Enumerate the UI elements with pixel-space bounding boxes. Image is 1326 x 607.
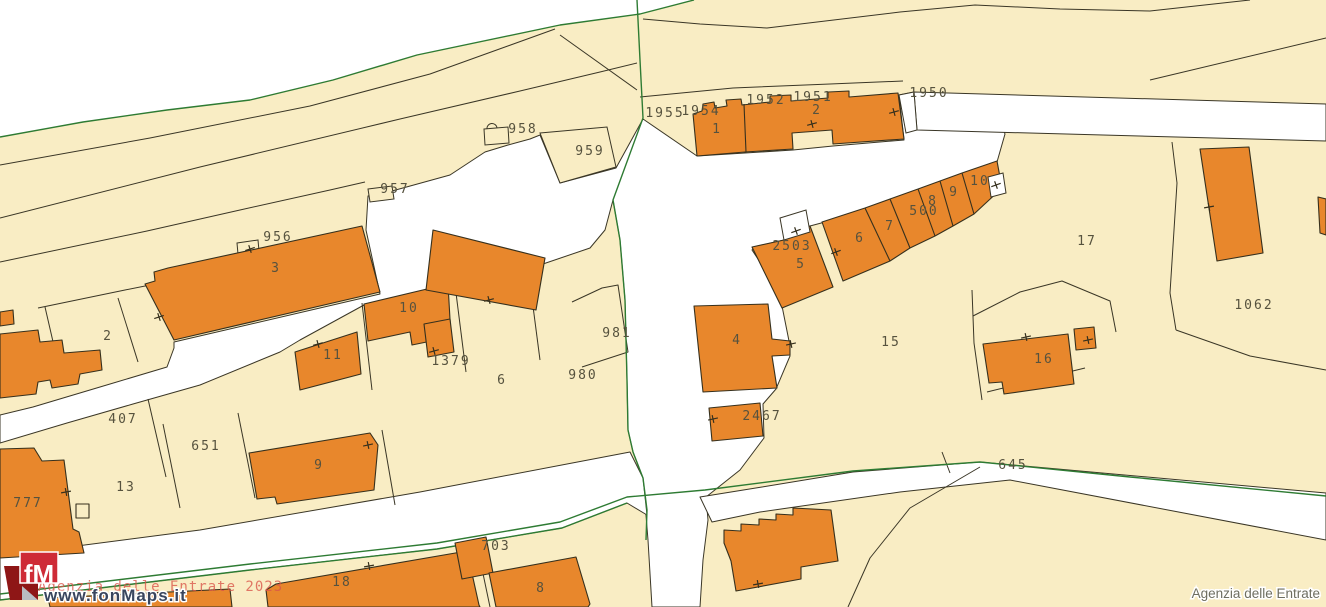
parcel-label: 7 bbox=[885, 219, 895, 234]
building-left-small bbox=[0, 310, 14, 326]
parcel-label: 6 bbox=[855, 231, 865, 246]
parcel-label: 16 bbox=[1034, 352, 1054, 367]
parcel-label: 6 bbox=[497, 373, 507, 388]
marker-958 bbox=[484, 127, 509, 145]
parcel-label: 959 bbox=[575, 144, 604, 159]
building-777-annex bbox=[76, 504, 89, 518]
parcel-label: 703 bbox=[481, 539, 510, 554]
credit-agenzia: Agenzia delle Entrate bbox=[1192, 586, 1320, 601]
parcel-label: 956 bbox=[263, 230, 292, 245]
parcel-label: 980 bbox=[568, 368, 597, 383]
parcel-label: 651 bbox=[191, 439, 220, 454]
parcel-label: 1062 bbox=[1234, 298, 1273, 313]
parcel-label: 17 bbox=[1077, 234, 1097, 249]
parcel-label: 777 bbox=[13, 496, 42, 511]
parcel-label: 4 bbox=[732, 333, 742, 348]
parcel-label: 13 bbox=[116, 480, 136, 495]
parcel-label: 1379 bbox=[431, 354, 470, 369]
parcel-label: 9 bbox=[314, 458, 324, 473]
parcel-label: 1955 bbox=[645, 106, 684, 121]
parcel-label: 1950 bbox=[909, 86, 948, 101]
parcel-label: 8 bbox=[536, 581, 546, 596]
parcel-label: 10 bbox=[970, 174, 990, 189]
parcel-label: 2 bbox=[103, 329, 113, 344]
parcel-label: 2503 bbox=[772, 239, 811, 254]
parcel-label: 2 bbox=[812, 103, 822, 118]
parcel-label: 9 bbox=[949, 185, 959, 200]
parcel-label: 1 bbox=[712, 122, 722, 137]
cadastral-map-app: 1955195419521951195012956957958959231011… bbox=[0, 0, 1326, 607]
parcel-label: 11 bbox=[323, 348, 343, 363]
watermark-fonmaps-url: www.fonMaps.it bbox=[43, 586, 187, 605]
cadastral-map-canvas[interactable]: 1955195419521951195012956957958959231011… bbox=[0, 0, 1326, 607]
parcel-label: 10 bbox=[399, 301, 419, 316]
parcel-label: 1952 bbox=[746, 93, 785, 108]
logo-fm-text: fM bbox=[24, 559, 54, 589]
parcel-label: 18 bbox=[332, 575, 352, 590]
parcel-label: 958 bbox=[508, 122, 537, 137]
building-1379 bbox=[424, 319, 454, 357]
parcel-label: 981 bbox=[602, 326, 631, 341]
parcel-label: 407 bbox=[108, 412, 137, 427]
parcel-label: 645 bbox=[998, 458, 1027, 473]
parcel-label: 3 bbox=[271, 261, 281, 276]
parcel-label: 957 bbox=[380, 182, 409, 197]
parcel-label: 15 bbox=[881, 335, 901, 350]
parcel-label: 2467 bbox=[742, 409, 781, 424]
parcel-label: 5 bbox=[796, 257, 806, 272]
parcel-label: 1954 bbox=[681, 104, 720, 119]
parcel-label: 8 bbox=[928, 194, 938, 209]
